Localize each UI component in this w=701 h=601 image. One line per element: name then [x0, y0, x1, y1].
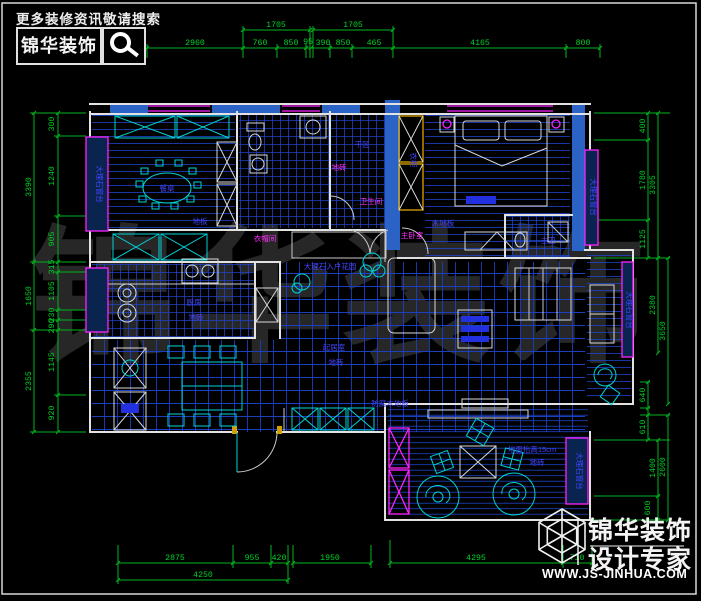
deck-floor-label: 防腐木地板: [371, 398, 409, 408]
dimensions-left: 300 1240 905 315 1105 230 290 1145 920 3…: [25, 111, 86, 434]
dim-label: 1240: [48, 166, 57, 186]
dim-label: 1125: [639, 229, 648, 249]
footer-website-url: WWW.JS-JINHUA.COM: [542, 567, 694, 581]
bathroom-label: 卫生间: [360, 196, 383, 206]
bath-tile-label: 地砖: [332, 162, 347, 172]
living-room-label: 起居室: [323, 342, 346, 352]
dim-label: 1705: [343, 21, 363, 30]
dim-label: 1950: [320, 554, 340, 563]
dim-label: 710: [570, 554, 585, 563]
cloakroom-label: 衣帽间: [254, 233, 277, 243]
dim-label: 2600: [659, 457, 668, 477]
dim-label: 4165: [470, 39, 490, 48]
dim-label: 850: [284, 39, 299, 48]
dim-label: 640: [639, 388, 648, 403]
dim-label: 1105: [48, 281, 57, 301]
raised-tile-label: 地砖: [530, 457, 545, 467]
floor-plan: 餐桌 地板 干区 地砖 卫生间 衣柜 衣帽间 主卧室 木地板 主卫 厨房 地砖 …: [86, 100, 635, 520]
dim-label: 3650: [659, 321, 668, 341]
dim-label: 2355: [25, 371, 34, 391]
dim-label: 4295: [466, 554, 486, 563]
dim-label: 1650: [25, 286, 34, 306]
dimensions-bottom: 2875 955 420 1950 4295 710 4250: [116, 540, 594, 584]
master-bedroom-label: 主卧室: [401, 230, 424, 240]
window-sill-label: 大理石窗台: [95, 165, 105, 203]
window-sill-label: 大理石窗台: [625, 291, 635, 329]
wood-floor-label: 木地板: [432, 218, 455, 228]
dim-label: 2960: [185, 39, 205, 48]
dim-label: 2380: [649, 295, 658, 315]
header-tagline: 更多装修资讯敬请搜索: [16, 8, 161, 28]
magnifier-icon: [102, 27, 146, 65]
dim-label: 3305: [649, 175, 658, 195]
dry-area-label: 干区: [355, 140, 370, 149]
dim-label: 800: [576, 39, 591, 48]
dim-label: 390: [316, 39, 331, 48]
dim-label: 465: [367, 39, 382, 48]
dining-floor-label: 地板: [193, 216, 208, 226]
dim-label: 1400: [649, 458, 658, 478]
dim-label: 290: [48, 319, 57, 334]
dim-label: 4250: [193, 571, 213, 580]
dim-label: 1780: [639, 170, 648, 190]
dim-label: 920: [48, 406, 57, 421]
dim-label: 850: [336, 39, 351, 48]
dim-label: 95: [303, 38, 313, 47]
dim-label: 315: [48, 260, 57, 275]
corridor: [113, 234, 207, 260]
dim-label: 420: [272, 554, 287, 563]
dimensions-top: 2960 1705 1705 760 850 95 390 850 465 41…: [145, 21, 602, 58]
kitchen-tile-label: 地砖: [189, 312, 204, 322]
living-tile-label: 地砖: [329, 357, 344, 367]
dim-label: 300: [48, 117, 57, 132]
dim-label: 610: [639, 420, 648, 435]
window-sill-label: 大理石窗台: [589, 178, 599, 216]
dim-label: 3390: [25, 177, 34, 197]
kitchen-label: 厨房: [187, 297, 202, 307]
dim-label: 760: [253, 39, 268, 48]
dim-label: 400: [639, 119, 648, 134]
raised-floor-label: 地面抬高15cm: [508, 444, 556, 454]
dim-label: 1705: [266, 21, 286, 30]
room-floors: [92, 114, 631, 518]
window-sill-label: 大理石窗台: [575, 452, 585, 490]
magnifier-handle: [127, 47, 139, 58]
dim-label: 955: [245, 554, 260, 563]
dining-table-label: 餐桌: [160, 183, 175, 193]
cad-floorplan-image: { "header": { "tagline": "更多装修资讯敬请搜索", "…: [0, 0, 701, 601]
entry-garden-label: 大理石入户花园: [304, 261, 357, 271]
wardrobe-label: 衣柜: [409, 153, 419, 168]
master-bath-label: 主卫: [541, 235, 556, 245]
dim-label: 905: [48, 232, 57, 247]
header-brand-logo: 锦华装饰: [16, 27, 102, 65]
dim-label: 2875: [165, 554, 185, 563]
dim-label: 1145: [48, 352, 57, 372]
